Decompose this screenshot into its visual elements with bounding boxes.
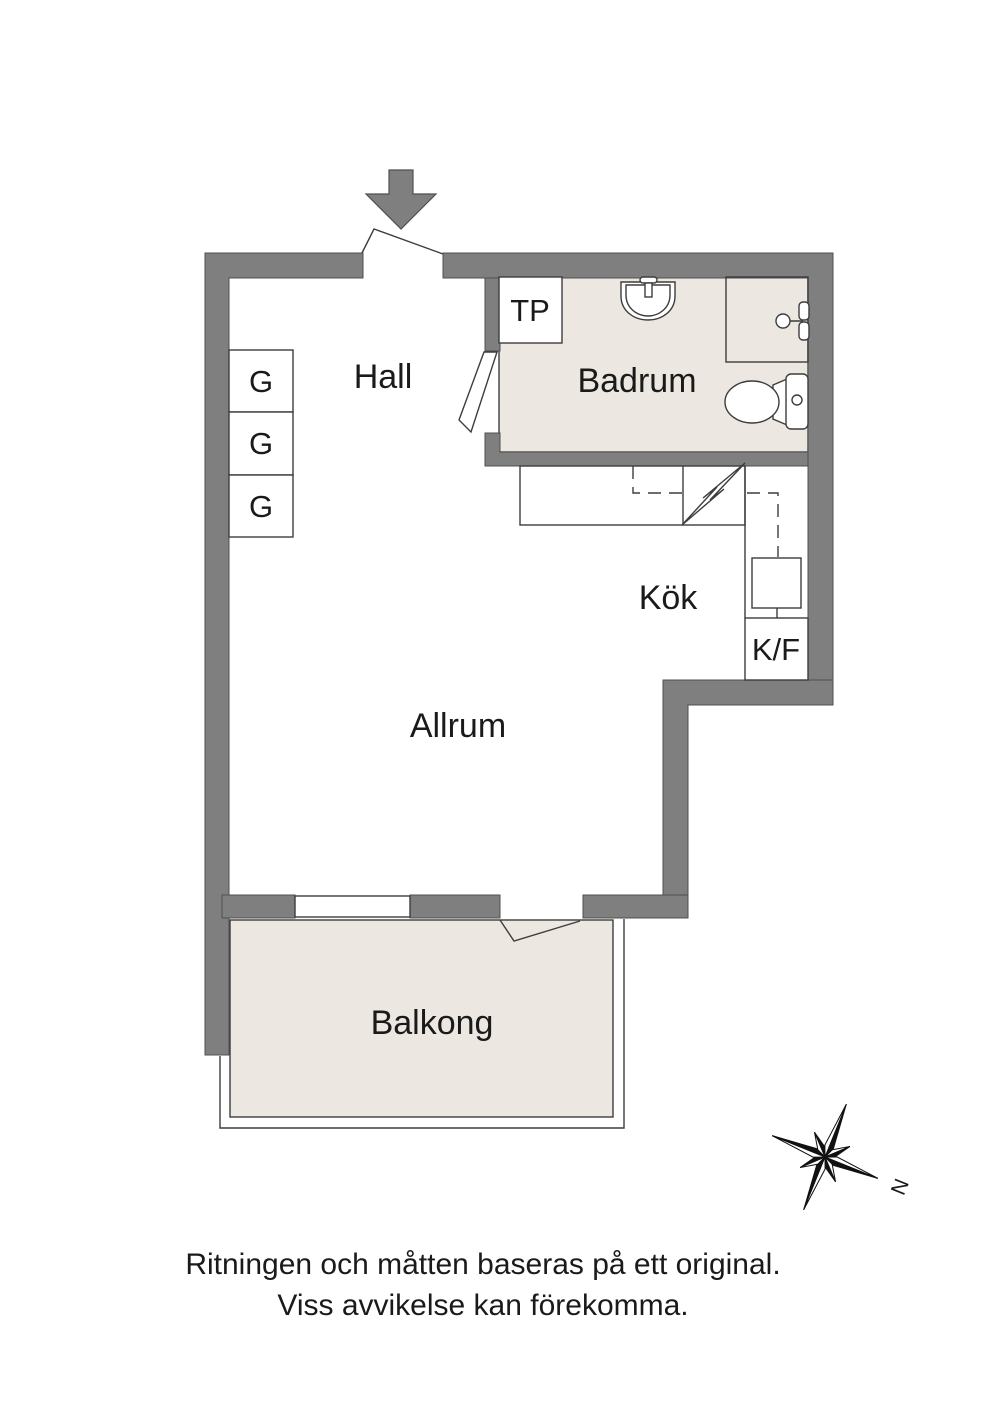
wardrobe-label-3: G bbox=[249, 489, 273, 524]
hall-area: G G G Hall bbox=[229, 350, 412, 537]
kok-label: Kök bbox=[639, 579, 699, 617]
balcony-window bbox=[295, 896, 410, 917]
floorplan-canvas: G G G Hall TP Ba bbox=[0, 0, 992, 1403]
kitchen-area: K/F Kök bbox=[520, 463, 808, 680]
entrance-door-swing bbox=[362, 229, 443, 254]
wall-kitchen-bottom bbox=[663, 680, 833, 918]
hall-label: Hall bbox=[354, 358, 413, 396]
tp-label: TP bbox=[510, 293, 550, 328]
badrum-label: Badrum bbox=[577, 362, 696, 400]
allrum-label: Allrum bbox=[410, 707, 506, 745]
entrance-arrow-icon bbox=[366, 170, 436, 229]
dishwasher-dashed-outline bbox=[633, 466, 682, 493]
sink-icon bbox=[621, 277, 675, 320]
wall-bottom-seg2 bbox=[410, 895, 500, 918]
compass-rose bbox=[751, 1083, 899, 1231]
appliance-dashed-outline bbox=[747, 493, 778, 557]
footer-line-1: Ritningen och måtten baseras på ett orig… bbox=[185, 1248, 780, 1281]
wall-bottom-seg3 bbox=[583, 895, 688, 918]
wardrobe-label-1: G bbox=[249, 364, 273, 399]
entrance bbox=[362, 170, 443, 254]
kf-label: K/F bbox=[752, 632, 800, 667]
wall-hall-bathroom-upper bbox=[485, 278, 500, 351]
footer-disclaimer: Ritningen och måtten baseras på ett orig… bbox=[185, 1248, 780, 1322]
stove-lightning-icon bbox=[682, 463, 745, 525]
bathroom-door-leaf bbox=[459, 352, 497, 432]
wall-bottom-seg1 bbox=[222, 895, 295, 918]
kitchen-appliance-box bbox=[752, 558, 801, 608]
wardrobe-label-2: G bbox=[249, 426, 273, 461]
floorplan-page: G G G Hall TP Ba bbox=[0, 0, 992, 1403]
compass-north-label: N bbox=[886, 1175, 913, 1198]
footer-line-2: Viss avvikelse kan förekomma. bbox=[277, 1289, 688, 1322]
balkong-label: Balkong bbox=[371, 1004, 494, 1042]
